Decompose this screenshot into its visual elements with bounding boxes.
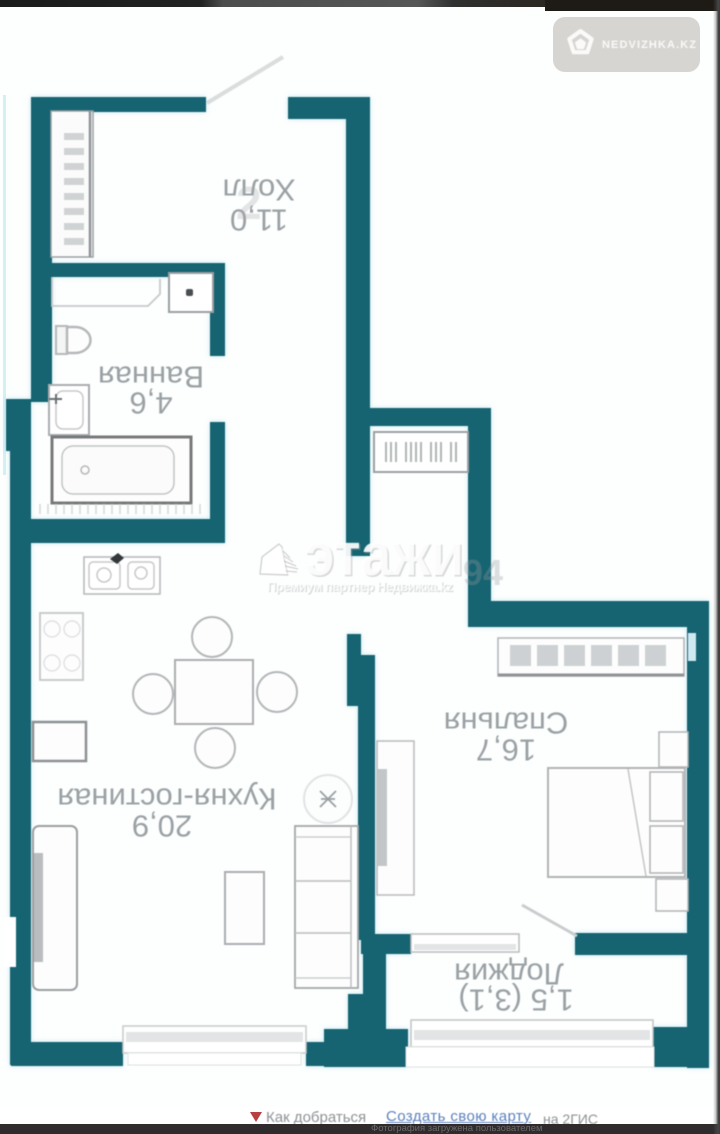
svg-text:20,9: 20,9	[132, 809, 192, 844]
svg-text:94: 94	[463, 552, 503, 593]
svg-text:этажи: этажи	[304, 521, 464, 588]
svg-text:2: 2	[236, 177, 262, 229]
svg-text:4,6: 4,6	[129, 386, 172, 421]
svg-text:Премиум партнер Недвижка.kz: Премиум партнер Недвижка.kz	[267, 579, 454, 594]
svg-text:1,5 (3,1): 1,5 (3,1)	[458, 983, 573, 1018]
svg-text:16,7: 16,7	[476, 733, 536, 768]
